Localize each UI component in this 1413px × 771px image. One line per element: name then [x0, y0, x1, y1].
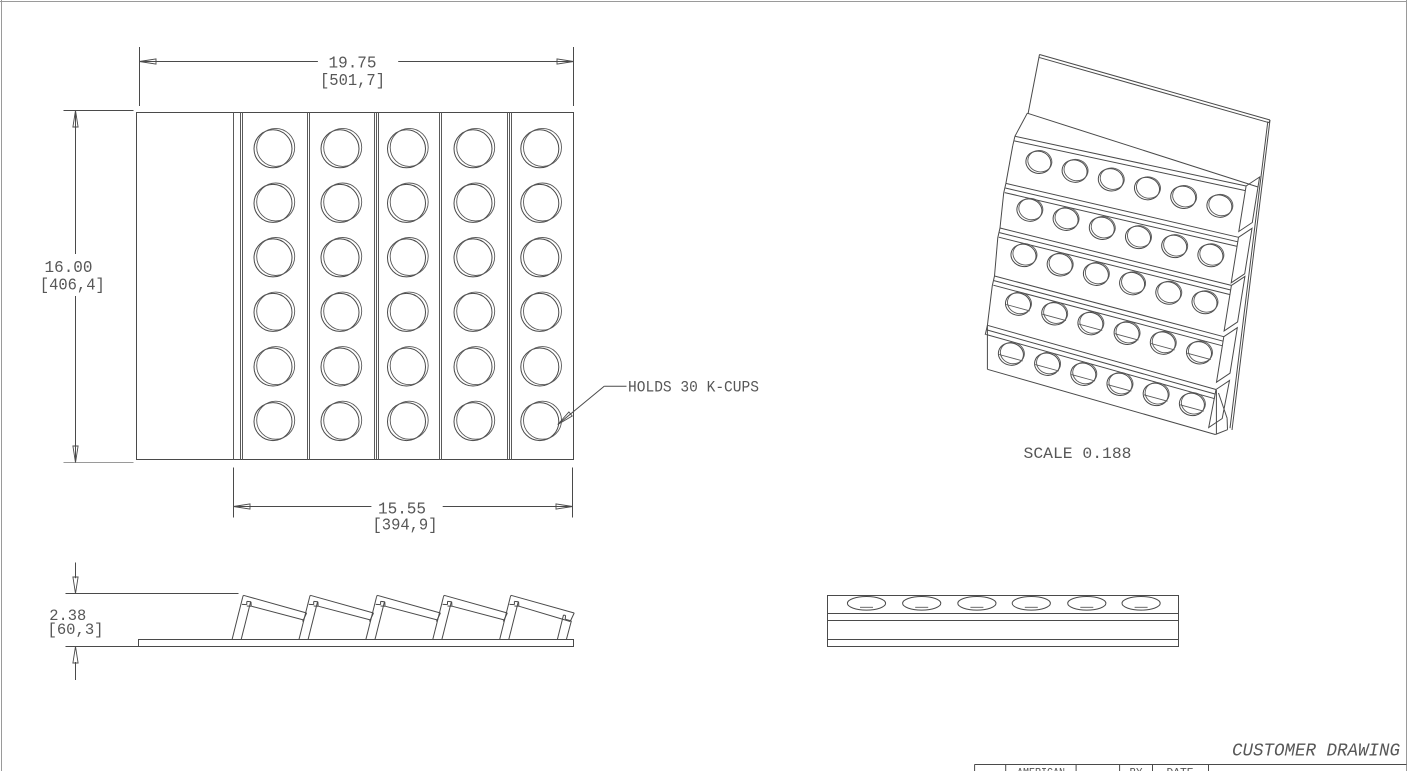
- svg-text:BY: BY: [1130, 768, 1143, 771]
- svg-text:[501,7]: [501,7]: [320, 72, 385, 91]
- svg-text:CUSTOMER DRAWING: CUSTOMER DRAWING: [1232, 742, 1400, 762]
- svg-text:HOLDS 30 K-CUPS: HOLDS 30 K-CUPS: [628, 379, 759, 397]
- svg-text:[394,9]: [394,9]: [373, 516, 438, 535]
- svg-text:[60,3]: [60,3]: [48, 621, 104, 639]
- svg-text:19.75: 19.75: [329, 55, 377, 74]
- svg-text:SCALE 0.188: SCALE 0.188: [1024, 445, 1132, 463]
- svg-text:DATE: DATE: [1167, 768, 1194, 771]
- svg-text:AMERICAN: AMERICAN: [1017, 768, 1065, 771]
- svg-text:[406,4]: [406,4]: [40, 276, 105, 295]
- svg-text:16.00: 16.00: [45, 259, 93, 278]
